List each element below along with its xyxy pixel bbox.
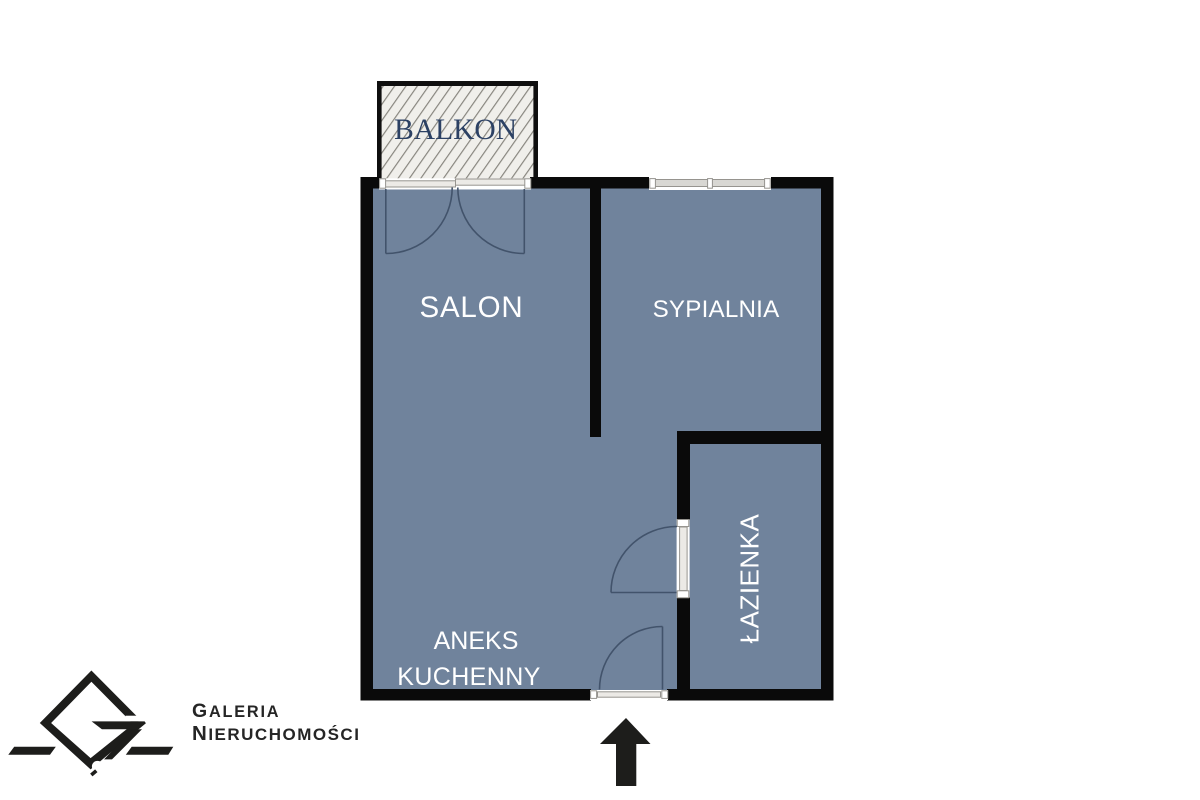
svg-text:SYPIALNIA: SYPIALNIA	[653, 296, 780, 323]
svg-text:KUCHENNY: KUCHENNY	[397, 663, 541, 691]
svg-text:SALON: SALON	[419, 291, 523, 324]
svg-text:BALKON: BALKON	[394, 114, 517, 146]
svg-text:ŁAZIENKA: ŁAZIENKA	[735, 513, 765, 643]
svg-text:NIERUCHOMOŚCI: NIERUCHOMOŚCI	[192, 722, 360, 745]
svg-text:GALERIA: GALERIA	[192, 700, 280, 722]
svg-text:ANEKS: ANEKS	[434, 627, 519, 655]
